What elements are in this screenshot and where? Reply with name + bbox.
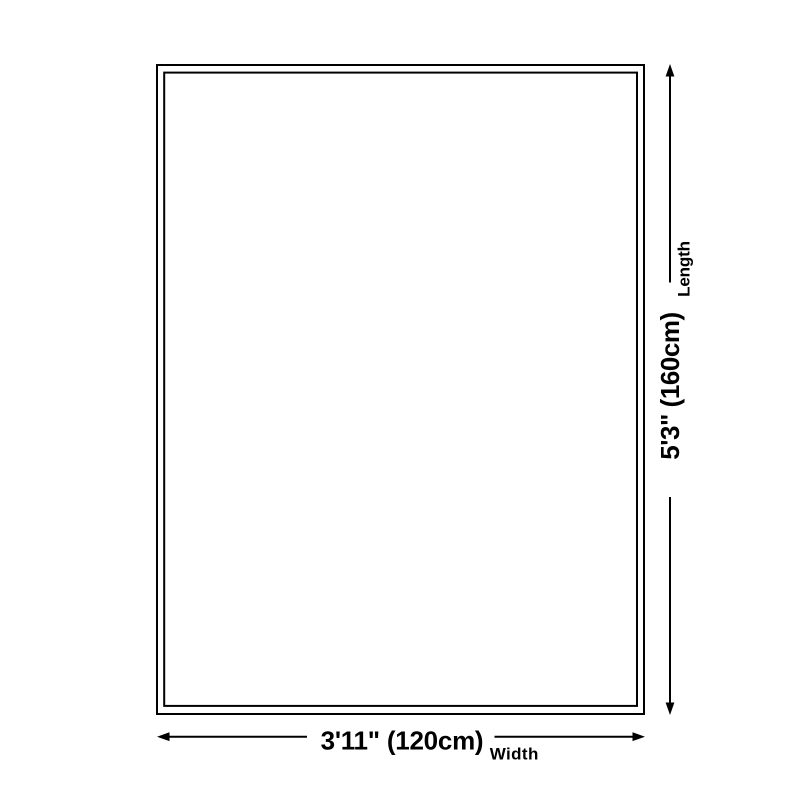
svg-text:Length: Length bbox=[675, 241, 694, 297]
svg-text:Width: Width bbox=[490, 745, 539, 764]
svg-text:5'3" (160cm): 5'3" (160cm) bbox=[655, 312, 685, 460]
svg-text:3'11" (120cm): 3'11" (120cm) bbox=[321, 726, 484, 756]
